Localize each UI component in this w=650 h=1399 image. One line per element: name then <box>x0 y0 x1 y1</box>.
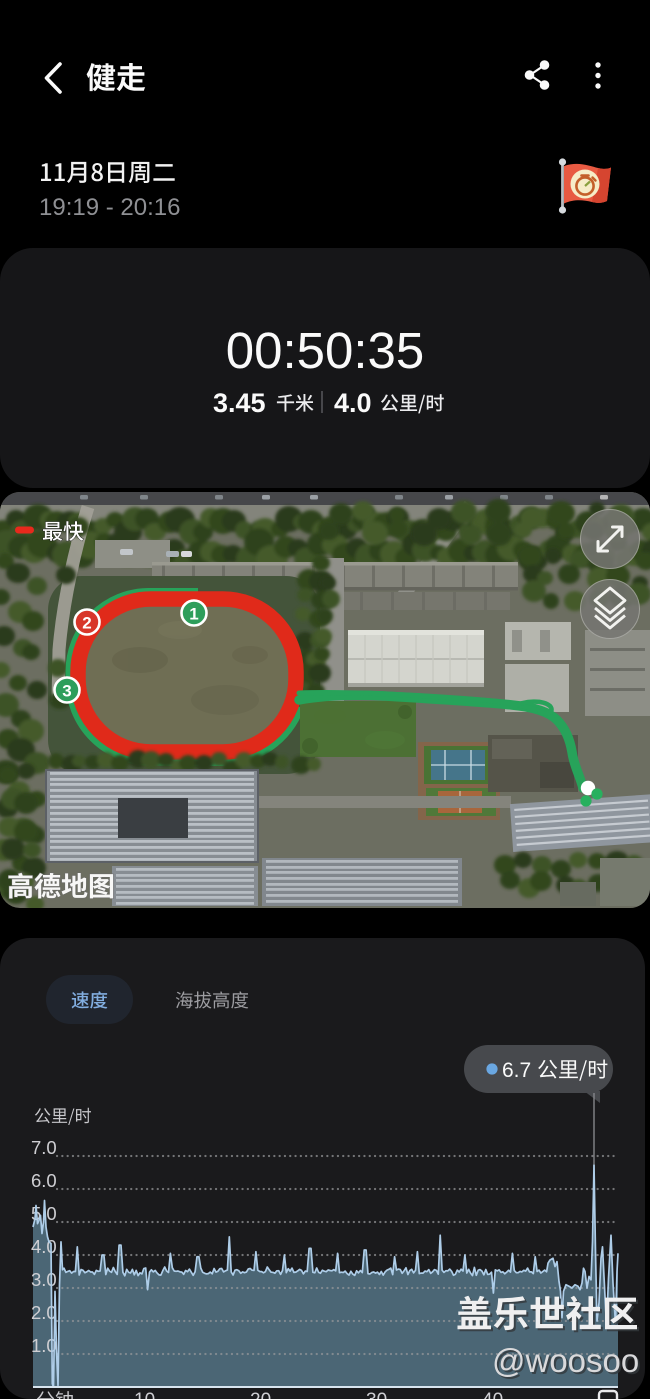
svg-text:10: 10 <box>134 1390 155 1399</box>
svg-text:1: 1 <box>189 605 198 624</box>
svg-text:7.0: 7.0 <box>31 1137 57 1158</box>
svg-text:19:19 - 20:16: 19:19 - 20:16 <box>39 194 180 221</box>
svg-text:4.0: 4.0 <box>31 1236 57 1257</box>
svg-text:6.7: 6.7 <box>502 1059 531 1082</box>
svg-text:30: 30 <box>366 1390 387 1399</box>
svg-text:3: 3 <box>62 682 71 701</box>
svg-text:4.0: 4.0 <box>334 388 372 418</box>
svg-text:3.45: 3.45 <box>213 388 266 418</box>
svg-text:2: 2 <box>82 614 91 633</box>
svg-text:00:50:35: 00:50:35 <box>226 322 425 379</box>
svg-text:40: 40 <box>482 1390 503 1399</box>
svg-text:6.0: 6.0 <box>31 1170 57 1191</box>
svg-text:3.0: 3.0 <box>31 1269 57 1290</box>
svg-text:20: 20 <box>250 1390 271 1399</box>
svg-text:2.0: 2.0 <box>31 1302 57 1323</box>
svg-text:@woosoo: @woosoo <box>492 1342 639 1379</box>
